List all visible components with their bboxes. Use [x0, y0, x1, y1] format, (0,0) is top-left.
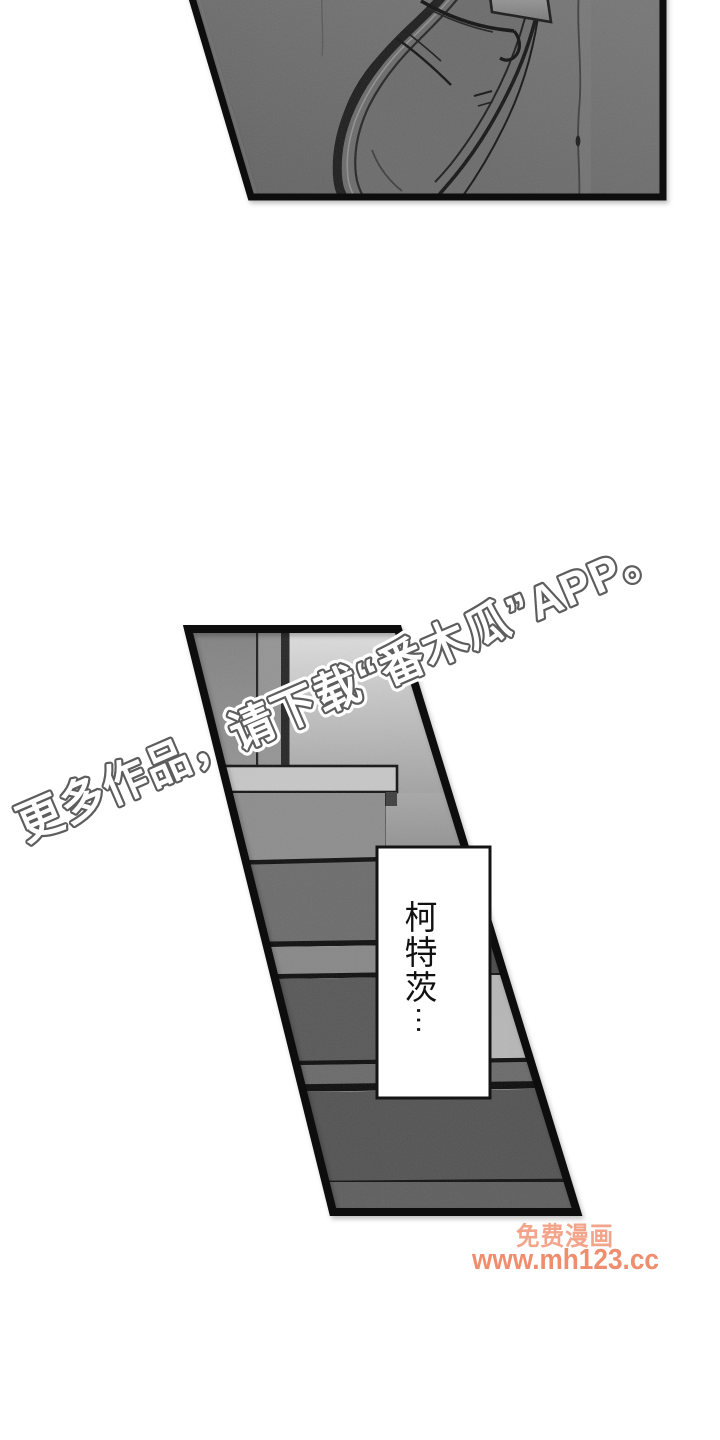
shoe-panel [150, 0, 690, 208]
speech-bubble: 柯 特 茨 … [377, 847, 490, 1098]
comic-page: 柯 特 茨 … 更多作品，请下载“番木瓜”APP。 更多作品，请下载“番木瓜”A… [0, 0, 720, 1440]
shoe-panel-content [150, 0, 690, 208]
comic-artwork: 柯 特 茨 … 更多作品，请下载“番木瓜”APP。 更多作品，请下载“番木瓜”A… [0, 0, 720, 1440]
bubble-char-3: 茨 [405, 969, 438, 1006]
bubble-char-1: 柯 [405, 899, 438, 936]
bubble-char-2: 特 [405, 934, 438, 971]
bubble-ellipsis: … [410, 1005, 443, 1035]
site-watermark: 免费漫画 www.mh123.cc [471, 1222, 659, 1276]
grain-texture [150, 0, 690, 208]
site-watermark-line2: www.mh123.cc [471, 1244, 659, 1276]
